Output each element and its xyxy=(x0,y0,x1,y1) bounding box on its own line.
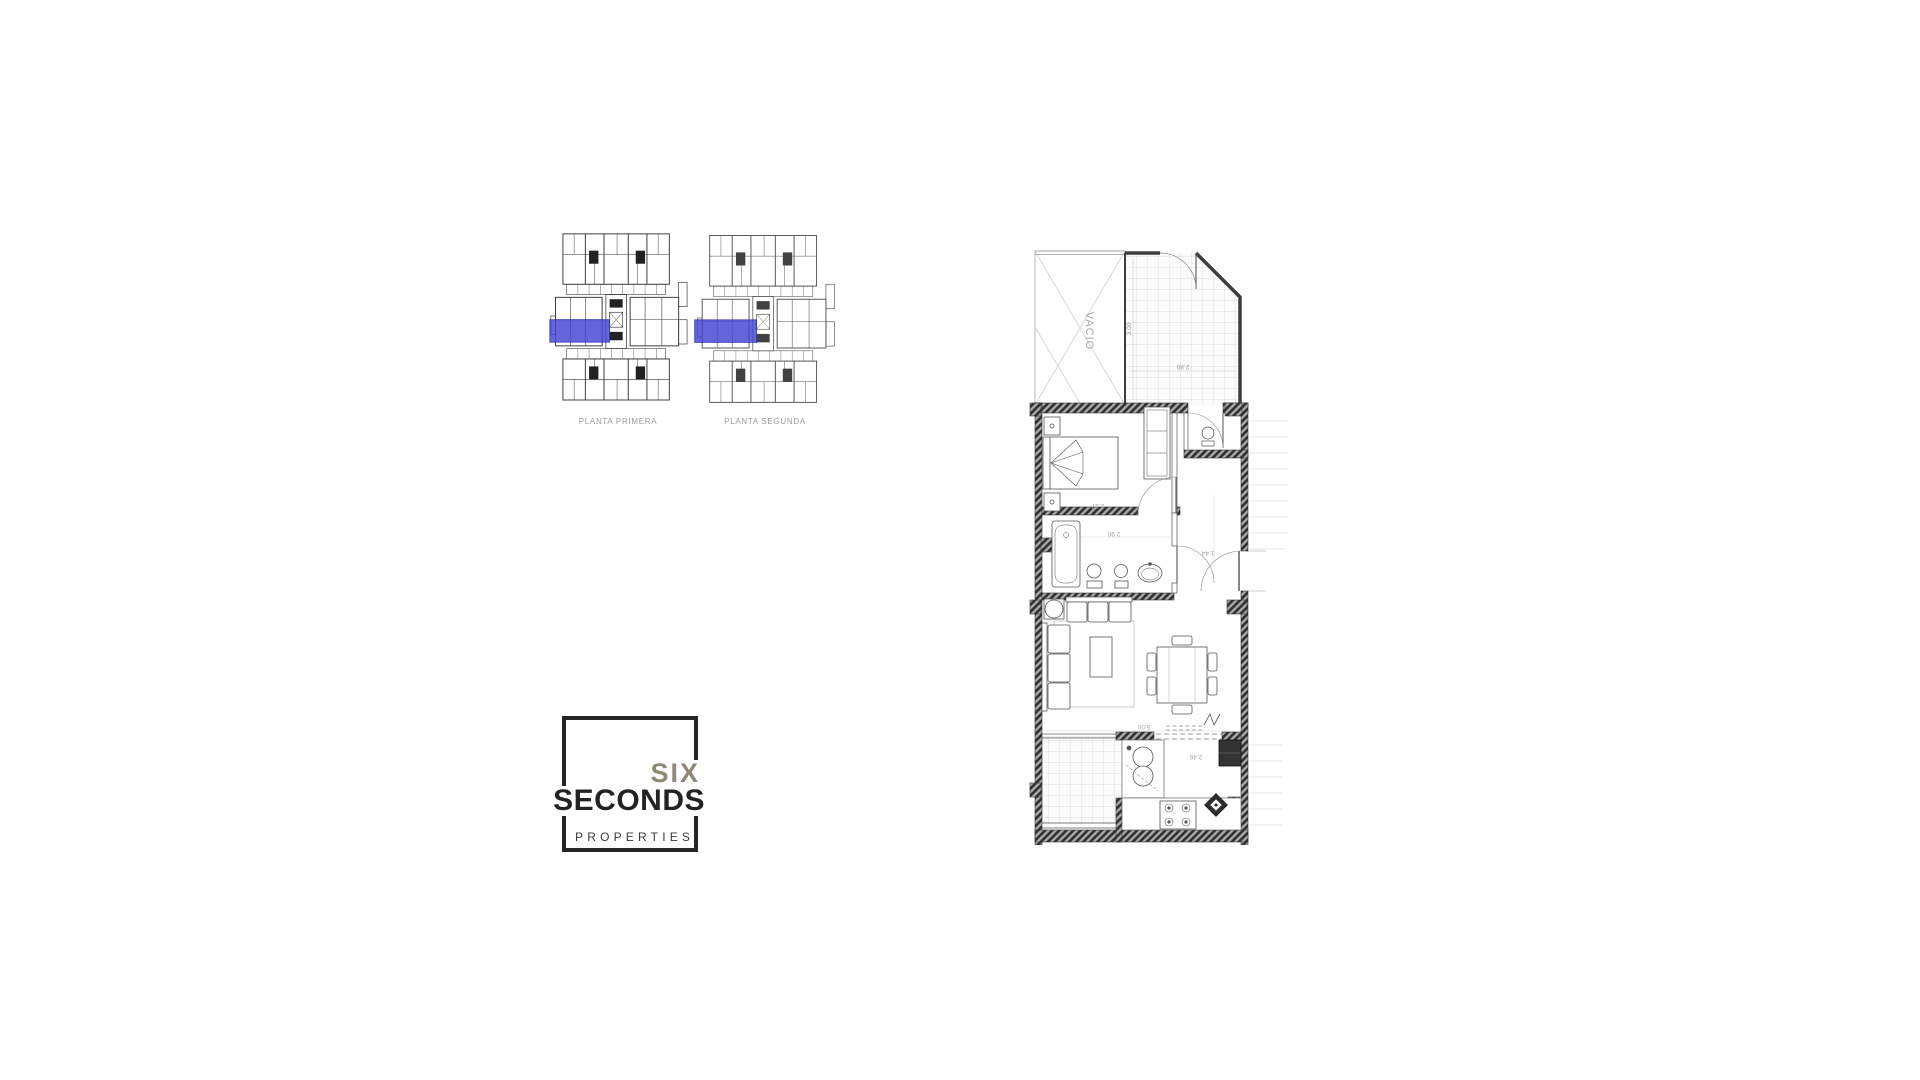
vent-symbol xyxy=(1204,714,1220,725)
dining-table xyxy=(1157,647,1207,703)
dim-bathroom: 2.90 xyxy=(1107,530,1120,537)
void-area: VACIO xyxy=(1035,251,1125,405)
dim-hall: 1.44 xyxy=(1201,549,1214,556)
bathroom: 2.90 xyxy=(1046,513,1214,593)
logo-word-seconds: SECONDS xyxy=(548,786,705,816)
toilet xyxy=(1087,564,1101,578)
stove xyxy=(1160,801,1196,829)
side-table xyxy=(1045,600,1063,618)
living-room: 5.00 xyxy=(1042,597,1236,731)
hall: 1.44 xyxy=(1201,495,1241,591)
dim-terrace-width: 2.80 xyxy=(1176,363,1189,370)
top-terrace: 3.00 2.80 xyxy=(1125,253,1240,405)
logo-word-properties: PROPERTIES xyxy=(575,831,694,843)
floor-label-primera: PLANTA PRIMERA xyxy=(548,417,688,426)
apartment-floorplan: VACIO 3.00 2.80 xyxy=(1026,245,1306,845)
neighbour-lines xyxy=(1248,421,1288,825)
void-label: VACIO xyxy=(1083,312,1095,350)
dim-terrace-depth: 3.00 xyxy=(1126,322,1133,335)
kitchen-sink xyxy=(1133,747,1153,767)
floorplan-page: { "overview": { "floors": [ { "label": "… xyxy=(0,0,1920,1080)
dim-bedroom: 2.17 xyxy=(1091,502,1104,509)
highlighted-unit-primera xyxy=(550,320,610,342)
bottom-terrace xyxy=(1042,734,1122,830)
floor-thumbnail-primera xyxy=(548,226,688,406)
bidet xyxy=(1115,565,1128,578)
entrance-door xyxy=(1201,551,1241,591)
wc-room xyxy=(1184,413,1223,450)
logo-word-six: SIX xyxy=(644,760,700,787)
coffee-table xyxy=(1090,637,1112,677)
floor-label-segunda: PLANTA SEGUNDA xyxy=(692,417,838,426)
floor-thumbnail-segunda xyxy=(692,228,838,408)
highlighted-unit-segunda xyxy=(695,320,757,343)
bedroom: 2.17 xyxy=(1043,407,1177,515)
dim-living: 5.00 xyxy=(1137,723,1150,730)
dim-kitchen: 2.46 xyxy=(1189,753,1202,760)
kitchen: 2.46 xyxy=(1122,734,1241,830)
agency-logo: SIX SECONDS PROPERTIES xyxy=(562,716,698,852)
